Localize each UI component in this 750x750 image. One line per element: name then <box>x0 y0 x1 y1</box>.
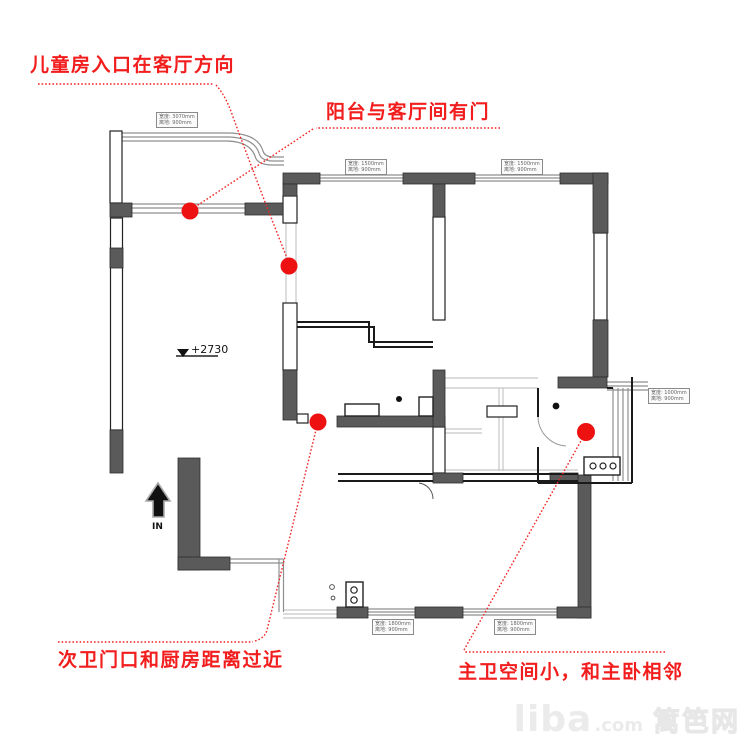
walls-thin <box>297 322 632 483</box>
masterbath-knob <box>553 403 560 410</box>
dim-label-kitchen-window: 宽度: 1800mm 离地: 900mm <box>372 619 414 635</box>
issue-dot-master-bath <box>577 423 595 441</box>
annotation-children-room-entry: 儿童房入口在客厅方向 <box>30 54 235 77</box>
entry-arrow: IN <box>146 483 170 532</box>
dim-label-balcony: 宽度: 3070mm 离地: 900mm <box>156 112 198 128</box>
issue-dots <box>182 203 596 442</box>
bedroom-cabinet <box>487 406 517 417</box>
level-value: +2730 <box>191 343 228 356</box>
issue-dot-balcony-door <box>182 203 199 220</box>
watermark-brand: liba <box>514 699 593 740</box>
leader-line <box>255 430 316 641</box>
leader-line <box>216 85 287 258</box>
entry-label: IN <box>152 522 163 532</box>
kitchen-door-arc <box>419 483 433 499</box>
bath-knob <box>396 396 402 402</box>
dim-label-master-window: 宽度: 1500mm 离地: 900mm <box>501 159 543 175</box>
dim-label-bottomright-window: 宽度: 1800mm 离地: 900mm <box>494 619 536 635</box>
issue-dot-children-entry <box>281 258 298 275</box>
annotation-master-bath: 主卫空间小，和主卧相邻 <box>458 661 684 684</box>
walls-dark <box>110 173 608 618</box>
fixtures <box>330 396 620 607</box>
dim-label-masterbath-window: 宽度: 1000mm 离地: 900mm <box>648 388 690 404</box>
annotation-bath-kitchen: 次卫门口和厨房距离过近 <box>58 649 284 672</box>
watermark-suffix: .com <box>594 715 643 736</box>
masterbath-door-arc <box>538 417 566 446</box>
watermark: liba .com 篱笆网 <box>514 699 740 740</box>
level-marker: +2730 <box>176 343 228 357</box>
issue-dot-bath-kitchen <box>310 414 327 431</box>
entry-arrow-icon <box>146 483 170 517</box>
annotation-balcony-door: 阳台与客厅间有门 <box>326 101 490 124</box>
watermark-site-name: 篱笆网 <box>653 700 740 739</box>
floorplan-page: +2730 IN 儿童房入口在客厅方向 阳台与客厅间有门 次卫门口和厨房距离过近… <box>0 0 750 750</box>
bath-counter <box>345 404 379 416</box>
dim-label-children-window: 宽度: 1500mm 离地: 900mm <box>345 159 387 175</box>
